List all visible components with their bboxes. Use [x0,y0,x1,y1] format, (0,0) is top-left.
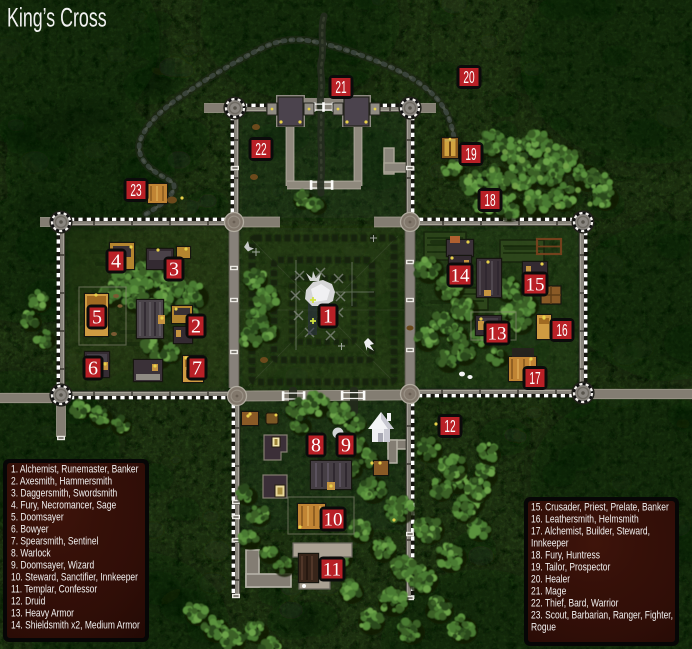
svg-text:19. Tailor, Prospector: 19. Tailor, Prospector [531,561,611,573]
svg-text:19: 19 [465,146,476,166]
svg-text:9: 9 [341,435,351,457]
svg-text:Innkeeper: Innkeeper [531,537,569,549]
svg-text:4. Fury, Necromancer, Sage: 4. Fury, Necromancer, Sage [11,499,117,511]
svg-text:9. Doomsayer, Wizard: 9. Doomsayer, Wizard [11,559,94,571]
svg-text:4: 4 [111,251,121,273]
svg-text:15: 15 [526,275,545,296]
svg-text:3. Daggersmith, Swordsmith: 3. Daggersmith, Swordsmith [11,487,117,499]
svg-text:14: 14 [451,266,471,287]
svg-text:1. Alchemist, Runemaster, Bank: 1. Alchemist, Runemaster, Banker [11,463,139,475]
svg-text:23: 23 [130,182,141,202]
svg-text:Rogue: Rogue [531,621,556,633]
svg-text:16. Leathersmith, Helmsmith: 16. Leathersmith, Helmsmith [531,513,639,525]
svg-text:20. Healer: 20. Healer [531,573,571,585]
svg-text:12: 12 [444,418,455,438]
svg-text:7: 7 [192,358,202,380]
svg-text:11. Templar, Confessor: 11. Templar, Confessor [11,583,98,595]
svg-text:8. Warlock: 8. Warlock [11,547,51,559]
svg-text:22. Thief, Bard, Warrior: 22. Thief, Bard, Warrior [531,597,619,609]
svg-text:10: 10 [324,510,343,531]
svg-text:18: 18 [484,192,495,212]
svg-text:2: 2 [191,316,201,338]
svg-text:22: 22 [255,141,266,161]
svg-text:18. Fury, Huntress: 18. Fury, Huntress [531,549,600,561]
svg-text:13. Heavy Armor: 13. Heavy Armor [11,607,75,619]
svg-text:King’s Cross: King’s Cross [7,2,107,33]
svg-text:13: 13 [488,324,507,345]
svg-text:16: 16 [556,322,567,342]
svg-text:5: 5 [92,307,102,329]
svg-text:2. Axesmith, Hammersmith: 2. Axesmith, Hammersmith [11,475,112,487]
svg-text:1: 1 [323,306,333,328]
svg-text:8: 8 [311,435,321,457]
svg-text:23. Scout, Barbarian, Ranger,: 23. Scout, Barbarian, Ranger, Fighter, [531,609,673,621]
svg-text:3: 3 [169,259,179,281]
svg-text:17. Alchemist, Builder, Stewar: 17. Alchemist, Builder, Steward, [531,525,650,537]
svg-text:10. Steward, Sanctifier, Innke: 10. Steward, Sanctifier, Innkeeper [11,571,139,583]
svg-text:6: 6 [88,358,98,380]
svg-text:6. Bowyer: 6. Bowyer [11,523,49,535]
svg-text:21: 21 [335,79,346,99]
svg-text:7. Spearsmith, Sentinel: 7. Spearsmith, Sentinel [11,535,98,547]
svg-text:17: 17 [529,370,540,390]
svg-text:20: 20 [463,69,474,89]
svg-text:11: 11 [323,560,341,581]
svg-text:12. Druid: 12. Druid [11,595,45,607]
svg-text:21. Mage: 21. Mage [531,585,567,597]
svg-text:15. Crusader, Priest, Prelate,: 15. Crusader, Priest, Prelate, Banker [531,501,669,513]
svg-text:5. Doomsayer: 5. Doomsayer [11,511,64,523]
svg-text:14. Shieldsmith x2, Medium Arm: 14. Shieldsmith x2, Medium Armor [11,619,140,631]
